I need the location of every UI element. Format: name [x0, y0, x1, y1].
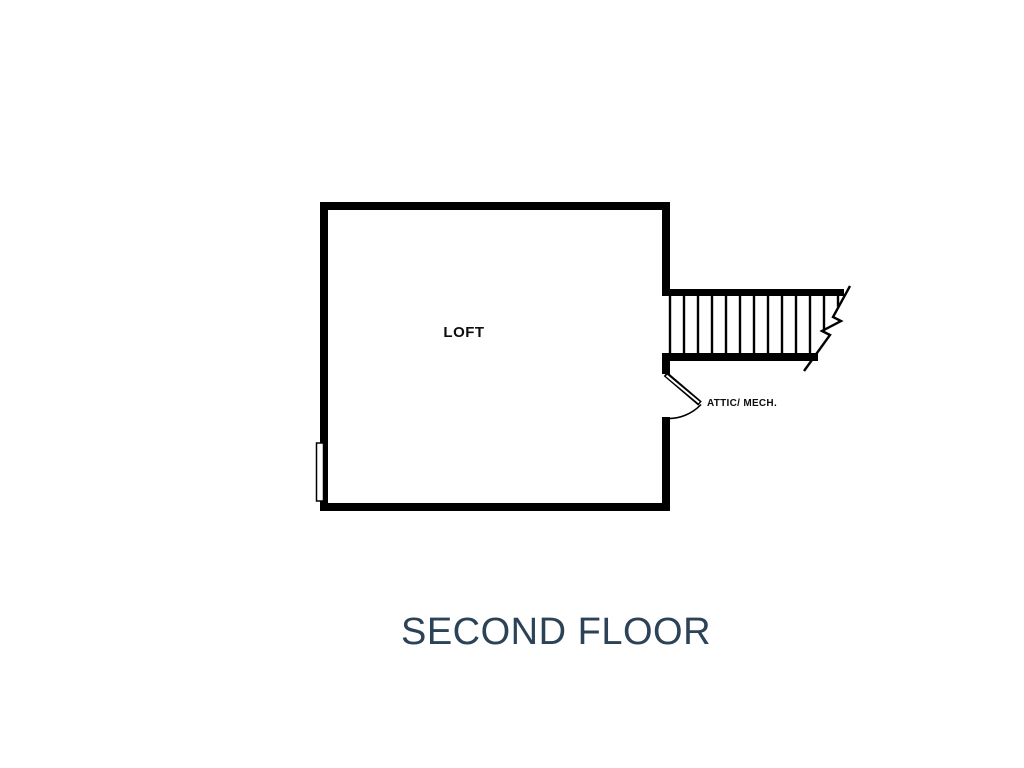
window [317, 443, 324, 501]
wall-right-door-jamb [662, 361, 670, 374]
wall-bottom [320, 503, 670, 511]
attic-mech-label: ATTIC/ MECH. [707, 398, 777, 409]
staircase [662, 286, 850, 371]
stairs-bottom-rail [662, 353, 818, 361]
stairs-treads [670, 296, 838, 353]
wall-right-lower [662, 417, 670, 511]
stairs-top-rail [662, 289, 844, 296]
floor-plan-canvas: LOFT ATTIC/ MECH. SECOND FLOOR [0, 0, 1024, 768]
plan-title: SECOND FLOOR [401, 611, 711, 654]
door-leaf-core [667, 376, 700, 403]
door-swing-arc [667, 405, 702, 419]
loft-label: LOFT [443, 324, 484, 341]
wall-top [320, 202, 670, 210]
attic-door [666, 374, 702, 419]
loft-room-walls [320, 202, 670, 511]
wall-right-upper [662, 202, 670, 289]
